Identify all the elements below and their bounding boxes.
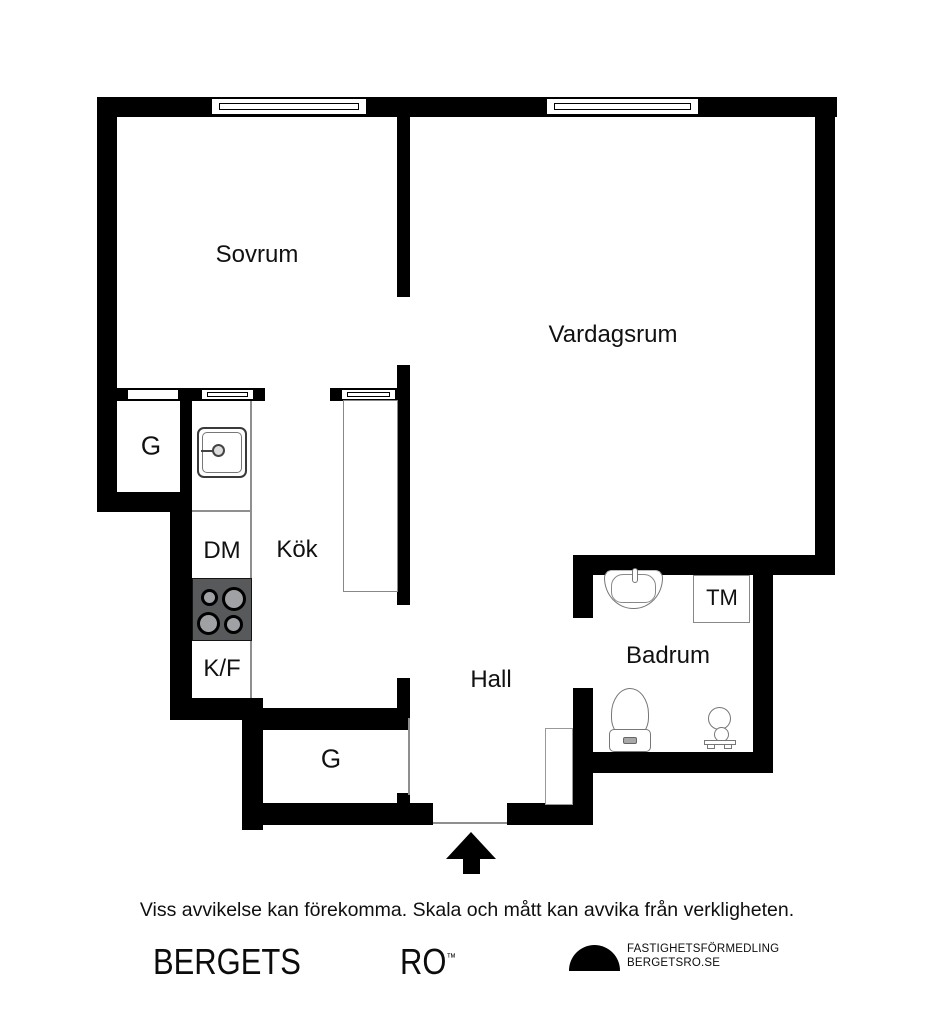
hall-door-leaf [545,728,573,805]
closet-front-line [408,718,410,795]
toilet-flush-button [623,737,637,744]
label-closet-upper: G [141,431,161,462]
interior-window-symbol [200,388,255,401]
shower-bracket-foot [724,744,732,749]
room-label-kok: Kök [276,536,317,564]
burner-icon [224,615,243,634]
wall [397,117,410,297]
window-glazing [207,392,248,397]
label-fridge-freezer: K/F [203,655,240,683]
wall [255,388,265,401]
disclaimer-text: Viss avvikelse kan förekomma. Skala och … [0,899,934,922]
label-dishwasher: DM [203,537,240,565]
window-glazing [347,392,390,397]
brand-wordmark-bergets: BERGETS [153,941,301,983]
stove-icon [192,578,252,641]
room-label-hall: Hall [470,666,511,694]
shower-bracket-foot [707,744,715,749]
kitchen-counter-divider [192,510,250,512]
faucet-knob-icon [212,444,225,457]
wall [397,365,410,605]
entrance-threshold-line [433,822,507,824]
wall [753,575,773,773]
room-label-badrum: Badrum [626,642,710,670]
window-glazing [554,103,691,110]
agency-line1: FASTIGHETSFÖRMEDLING [627,943,779,957]
wall [97,97,837,117]
room-label-sovrum: Sovrum [216,241,299,269]
wall [242,708,410,730]
burner-icon [201,589,218,606]
wall [97,97,117,512]
brand-wordmark-ro: RO™ [400,941,456,983]
label-washing-machine: TM [706,585,738,611]
window-symbol [210,97,368,116]
burner-icon [222,587,246,611]
brand-dome-logo-icon [569,945,620,971]
window-glazing [219,103,359,110]
closet-door-symbol [128,388,178,401]
agency-text: FASTIGHETSFÖRMEDLING BERGETSRO.SE [627,943,779,970]
agency-line2: BERGETSRO.SE [627,957,779,971]
wall [117,388,128,401]
room-label-vardagsrum: Vardagsrum [549,321,678,349]
window-symbol [545,97,700,116]
bathroom-sink-tap-icon [632,568,638,583]
label-closet-lower: G [321,744,341,775]
trademark-symbol: ™ [446,952,455,964]
burner-icon [197,612,220,635]
wall [242,803,433,825]
entrance-arrow-icon [446,832,496,859]
wall [573,752,773,773]
wall [815,97,835,575]
kitchen-counter-edge [250,401,252,698]
entrance-arrow-stem [463,857,480,874]
wall [170,492,192,720]
wall [330,388,340,401]
floorplan-page: Sovrum Vardagsrum Kök Hall Badrum G G DM… [0,0,934,1024]
kitchen-bench [343,400,398,592]
brand-ro-text: RO [400,941,446,982]
